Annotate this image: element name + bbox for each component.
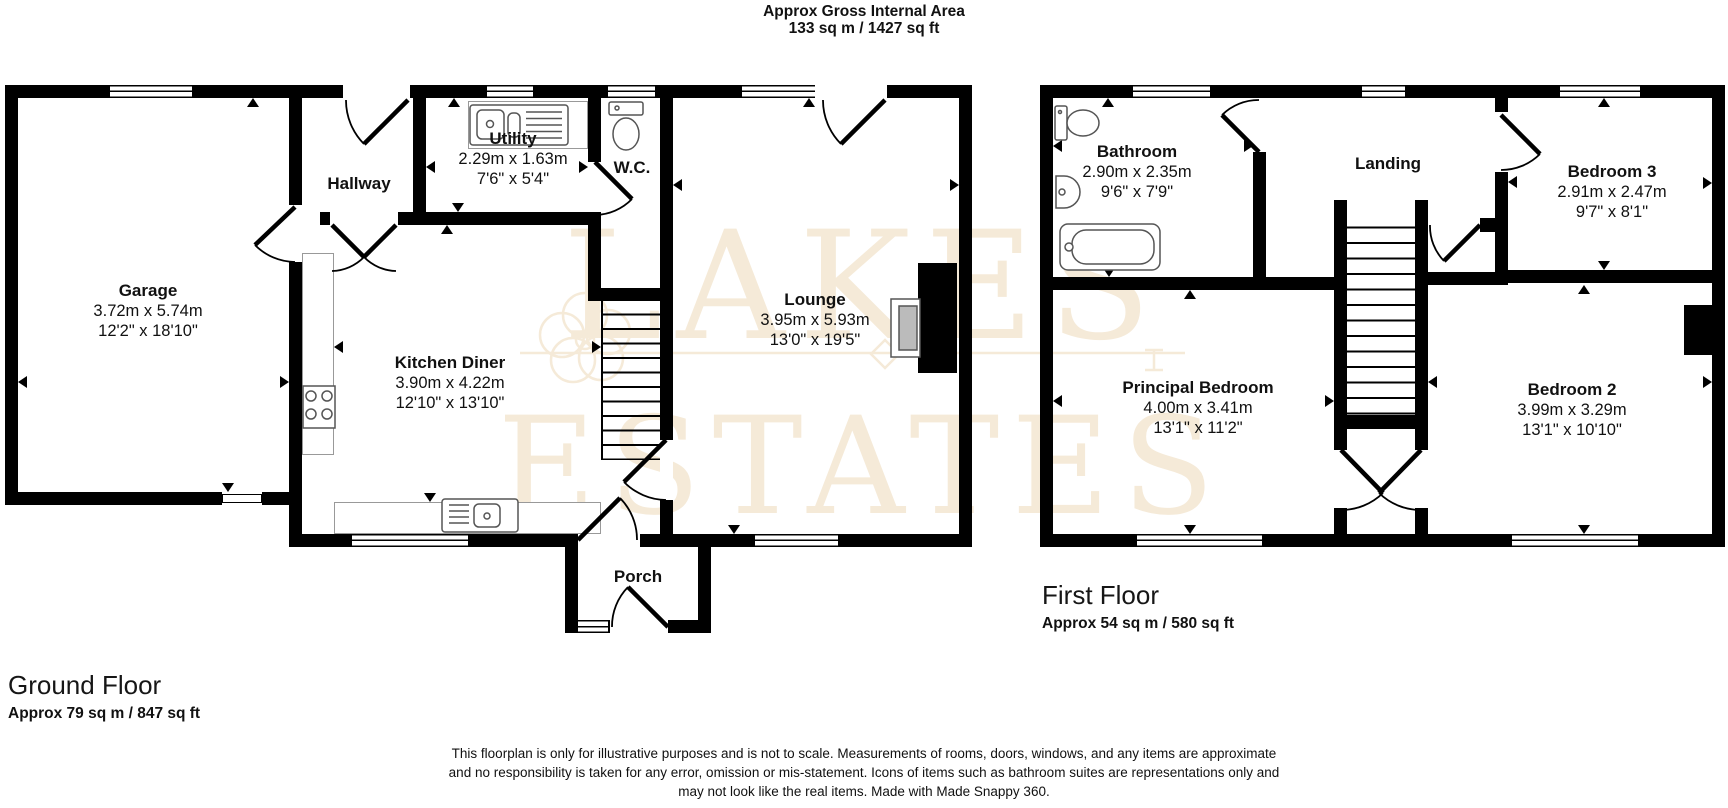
room-label-landing: Landing xyxy=(1355,154,1421,174)
door-leaf xyxy=(578,498,620,540)
room-label-lounge: Lounge 3.95m x 5.93m 13'0" x 19'5" xyxy=(760,290,869,350)
room-label-garage: Garage 3.72m x 5.74m 12'2" x 18'10" xyxy=(93,281,202,341)
ground-floor-area: Approx 79 sq m / 847 sq ft xyxy=(8,705,200,723)
door-arc xyxy=(332,257,364,271)
first-floor-heading: First Floor xyxy=(1042,580,1159,611)
door-arc xyxy=(364,257,396,271)
door-arc xyxy=(595,199,632,215)
door-arc xyxy=(823,100,841,144)
door-leaf xyxy=(628,587,668,627)
gross-area-title: Approx Gross Internal Area xyxy=(0,3,1728,21)
toilet-icon xyxy=(1055,106,1099,140)
door-arc xyxy=(624,482,666,500)
room-label-hallway: Hallway xyxy=(327,174,390,194)
door-leaf xyxy=(1379,450,1421,493)
disclaimer-line: This floorplan is only for illustrative … xyxy=(0,744,1728,763)
fireplace xyxy=(891,299,920,357)
door-leaf xyxy=(1222,115,1259,152)
room-label-utility: Utility 2.29m x 1.63m 7'6" x 5'4" xyxy=(458,129,567,189)
floorplan-canvas: Approx Gross Internal Area 133 sq m / 14… xyxy=(0,0,1728,808)
door-leaf xyxy=(1444,225,1480,261)
disclaimer: This floorplan is only for illustrative … xyxy=(0,744,1728,801)
gross-area-value: 133 sq m / 1427 sq ft xyxy=(0,20,1728,38)
disclaimer-line: and no responsibility is taken for any e… xyxy=(0,763,1728,782)
first-floor-area: Approx 54 sq m / 580 sq ft xyxy=(1042,615,1234,633)
door-leaf xyxy=(332,225,364,257)
basin-icon xyxy=(1056,176,1080,208)
door-arc xyxy=(346,100,364,144)
door-leaf xyxy=(841,100,885,144)
door-arc xyxy=(612,587,628,627)
door-arc xyxy=(1341,493,1383,510)
door-leaf xyxy=(255,207,295,245)
door-leaf xyxy=(1341,450,1383,493)
room-label-bedroom-3: Bedroom 3 2.91m x 2.47m 9'7" x 8'1" xyxy=(1557,162,1666,222)
door-leaf xyxy=(1501,115,1540,154)
door-arc xyxy=(1379,493,1421,510)
ground-floor-heading: Ground Floor xyxy=(8,670,161,701)
door-arc xyxy=(1501,154,1540,170)
room-label-wc: W.C. xyxy=(614,158,651,178)
door-leaf xyxy=(624,440,666,482)
sink-drainer-icon xyxy=(442,499,518,532)
room-label-principal-bedroom: Principal Bedroom 4.00m x 3.41m 13'1" x … xyxy=(1122,378,1273,438)
room-label-bathroom: Bathroom 2.90m x 2.35m 9'6" x 7'9" xyxy=(1082,142,1191,202)
hob-icon xyxy=(303,386,335,428)
bathtub-icon xyxy=(1060,224,1160,270)
door-arc xyxy=(1222,100,1259,115)
door-leaf xyxy=(364,225,396,257)
room-label-porch: Porch xyxy=(614,567,662,587)
door-arc xyxy=(620,498,637,540)
room-label-kitchen-diner: Kitchen Diner 3.90m x 4.22m 12'10" x 13'… xyxy=(395,353,506,413)
door-arc xyxy=(1430,225,1444,261)
room-label-bedroom-2: Bedroom 2 3.99m x 3.29m 13'1" x 10'10" xyxy=(1517,380,1626,440)
toilet-icon xyxy=(609,102,643,150)
door-arc xyxy=(255,245,295,262)
door-leaf xyxy=(364,100,408,144)
disclaimer-line: may not look like the real items. Made w… xyxy=(0,782,1728,801)
doors-and-fixtures-overlay xyxy=(0,0,1728,808)
